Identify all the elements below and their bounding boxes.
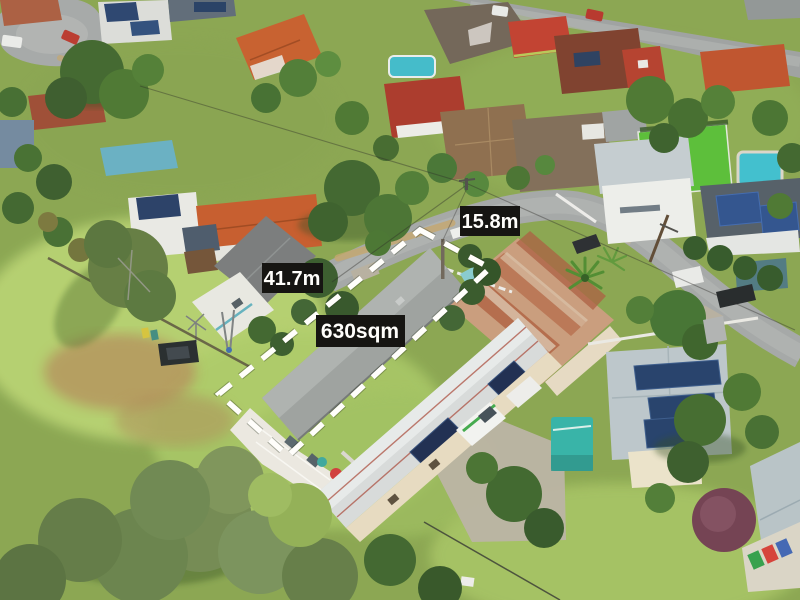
- aerial-property-photo: 15.8m 41.7m 630sqm: [0, 0, 800, 600]
- sunlight-wash: [0, 0, 800, 600]
- aerial-photo-canvas: 15.8m 41.7m 630sqm: [0, 0, 800, 600]
